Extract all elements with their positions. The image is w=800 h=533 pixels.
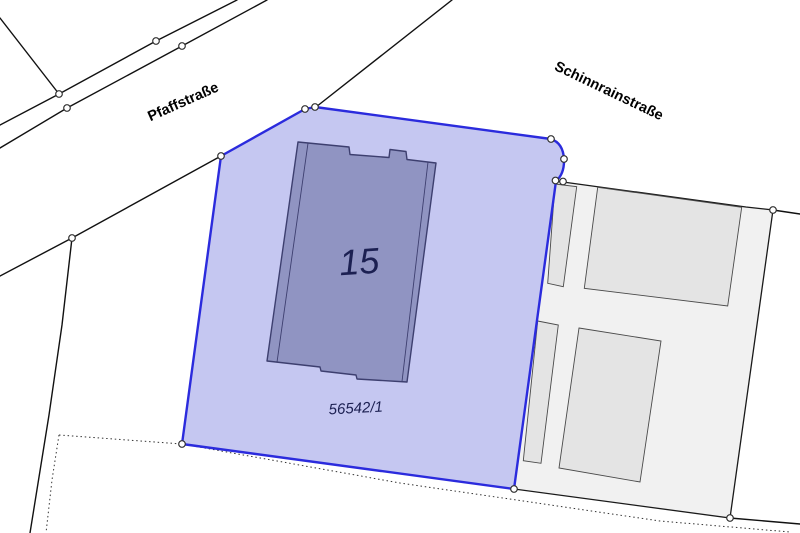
street-line-south [0, 156, 221, 276]
boundary-point [153, 38, 160, 45]
street-label-schinnrainstrasse: Schinnrainstraße [552, 59, 666, 124]
street-line-north-upper [0, 0, 237, 125]
boundary-point [552, 177, 559, 184]
boundary-point [770, 207, 777, 214]
neighbor-building-large-top[interactable] [584, 187, 741, 306]
diagonal-line-top-left [0, 18, 59, 94]
boundary-point [511, 486, 518, 493]
house-number-label: 15 [338, 240, 382, 284]
boundary-point [548, 136, 555, 143]
boundary-point [56, 91, 63, 98]
boundary-point [561, 156, 568, 163]
boundary-point [64, 105, 71, 112]
boundary-point [302, 106, 309, 113]
boundary-point [218, 153, 225, 160]
boundary-point [69, 235, 76, 242]
boundary-line-west-vertical [30, 238, 72, 533]
cadastral-map-canvas[interactable]: Pfaffstraße Schinnrainstraße 15 56542/1 [0, 0, 800, 533]
street-line-north-lower [0, 0, 267, 148]
boundary-line-east-bottom [730, 518, 800, 524]
dotted-boundary-vertical [46, 435, 59, 533]
map-svg: Pfaffstraße Schinnrainstraße 15 56542/1 [0, 0, 800, 533]
boundary-point [560, 178, 567, 185]
street-label-pfaffstrasse: Pfaffstraße [146, 80, 222, 125]
boundary-point [179, 43, 186, 50]
boundary-point [312, 104, 319, 111]
street-line-schinnrain [316, 0, 452, 107]
boundary-point [727, 515, 734, 522]
street-boundary-line-east-top [773, 210, 800, 214]
boundary-point [179, 441, 186, 448]
parcel-number-label: 56542/1 [328, 399, 383, 419]
